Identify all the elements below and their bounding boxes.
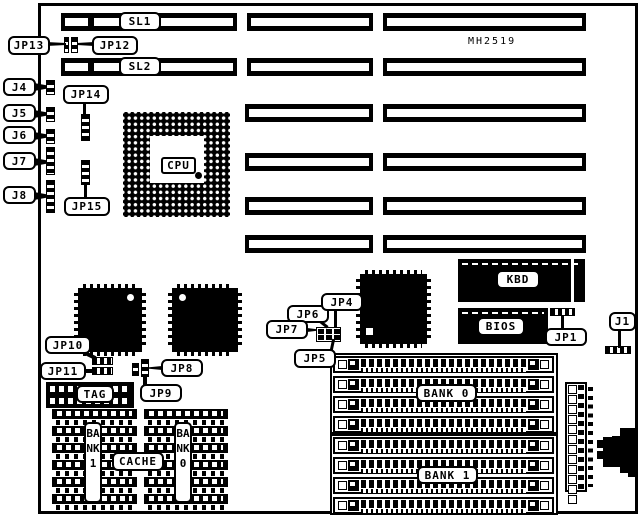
keyboard-din-tab — [597, 451, 603, 459]
pin-header-jp9 — [132, 363, 139, 376]
board-part-number: MH2519 — [468, 36, 516, 47]
label-bank0: BANK 0 — [416, 384, 477, 402]
chip-pin1-dot — [366, 328, 373, 335]
callout-jp5: JP5 — [294, 349, 336, 368]
chip-pin1-dot — [179, 294, 186, 301]
callout-j1: J1 — [609, 312, 636, 331]
chip-notch-line — [462, 312, 544, 314]
leader-line — [618, 330, 621, 348]
leader-line — [561, 315, 564, 329]
callout-jp15: JP15 — [64, 197, 110, 216]
isa-slot-long-6 — [383, 235, 586, 253]
isa-slot-short-3 — [245, 104, 373, 122]
leader-line — [86, 369, 95, 373]
callout-jp9: JP9 — [140, 384, 182, 402]
pin-header-jp11 — [92, 367, 113, 375]
qfp-chip-chipset — [360, 274, 427, 344]
callout-jp4: JP4 — [321, 293, 363, 311]
isa-slot-short-1 — [247, 13, 373, 31]
isa-slot-long-2 — [383, 58, 586, 76]
label-bios: BIOS — [477, 317, 525, 336]
isa-slot-short-5 — [245, 197, 373, 215]
jumper-block-jp4-jp7 — [316, 327, 341, 342]
keyboard-din-connector — [612, 436, 638, 467]
isa-slot-long-5 — [383, 197, 586, 215]
callout-jp11: JP11 — [40, 362, 86, 380]
label-cache-bank1: BANK1 — [84, 422, 102, 503]
power-connector-pins — [568, 385, 577, 505]
leader-line — [334, 311, 337, 328]
pin-header-j6 — [46, 129, 55, 144]
label-cache: CACHE — [112, 452, 164, 471]
pin-header-j4 — [46, 80, 55, 95]
isa-slot-short-2 — [247, 58, 373, 76]
label-bank1: BANK 1 — [417, 466, 478, 484]
power-connector — [565, 382, 587, 492]
isa-slot-short-4 — [245, 153, 373, 171]
label-sl2: SL2 — [119, 57, 161, 76]
keyboard-din-connector — [628, 472, 638, 477]
callout-j7: J7 — [3, 152, 36, 170]
isa-slot-long-1 — [383, 13, 586, 31]
callout-jp7: JP7 — [266, 320, 308, 339]
pin-header-j5 — [46, 107, 55, 122]
callout-jp8: JP8 — [161, 359, 203, 377]
simm-socket — [333, 416, 554, 433]
chip-notch-line — [462, 263, 581, 265]
label-cache-bank0: BANK0 — [174, 422, 192, 503]
power-connector-ticks — [588, 387, 593, 487]
label-kbd: KBD — [496, 270, 540, 289]
isa-slot-long-3 — [383, 104, 586, 122]
callout-jp1: JP1 — [545, 328, 587, 346]
label-sl1: SL1 — [119, 12, 161, 31]
simm-socket — [333, 497, 554, 514]
callout-jp14: JP14 — [63, 85, 109, 104]
isa-slot-long-4 — [383, 153, 586, 171]
pin-header-jp12 — [71, 37, 78, 53]
chip-pin1-dot — [127, 294, 134, 301]
simm-socket — [333, 437, 554, 454]
callout-j5: J5 — [3, 104, 36, 122]
leader-line — [83, 103, 86, 115]
callout-j8: J8 — [3, 186, 36, 204]
chip-socket-gap — [571, 259, 574, 302]
slot-key — [88, 18, 94, 26]
cpu-pin1-marker — [195, 172, 202, 179]
pin-header-j8 — [46, 180, 55, 213]
leader-line — [84, 184, 87, 198]
keyboard-din-tab — [597, 440, 603, 448]
isa-slot-short-6 — [245, 235, 373, 253]
pin-header-j7 — [46, 147, 55, 175]
label-cpu: CPU — [161, 157, 196, 174]
callout-jp10: JP10 — [45, 336, 91, 354]
power-connector-keys — [578, 385, 584, 489]
callout-j6: J6 — [3, 126, 36, 144]
label-tag: TAG — [76, 385, 114, 403]
pin-header-jp15 — [81, 160, 90, 185]
callout-jp13: JP13 — [8, 36, 50, 55]
simm-socket — [333, 356, 554, 373]
qfp-chip-cache-controller-2 — [172, 288, 238, 352]
pin-header-jp8 — [141, 359, 149, 377]
callout-j4: J4 — [3, 78, 36, 96]
keyboard-din-connector — [603, 437, 612, 467]
motherboard-layout-diagram: MH2519 SL1 SL2 JP13 JP12 J4 J5 J6 J7 J8 … — [0, 0, 641, 520]
callout-jp12: JP12 — [92, 36, 138, 55]
pin-header-jp14 — [81, 114, 90, 141]
